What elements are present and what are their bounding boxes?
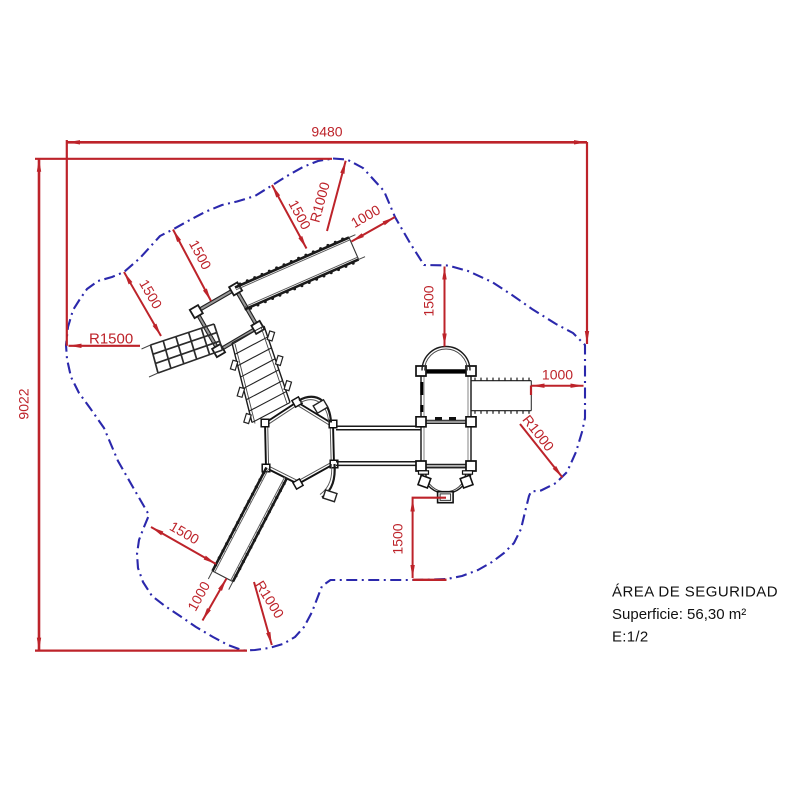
svg-text:1500: 1500 — [421, 285, 437, 316]
svg-text:1500: 1500 — [390, 523, 406, 554]
svg-text:E:1/2: E:1/2 — [612, 629, 649, 646]
svg-text:R1500: R1500 — [89, 331, 133, 348]
svg-text:9480: 9480 — [311, 124, 342, 140]
svg-text:Superficie: 56,30 m²: Superficie: 56,30 m² — [612, 606, 746, 623]
svg-text:9022: 9022 — [16, 388, 32, 419]
svg-text:ÁREA DE SEGURIDAD: ÁREA DE SEGURIDAD — [612, 584, 778, 601]
svg-text:1000: 1000 — [542, 367, 573, 383]
